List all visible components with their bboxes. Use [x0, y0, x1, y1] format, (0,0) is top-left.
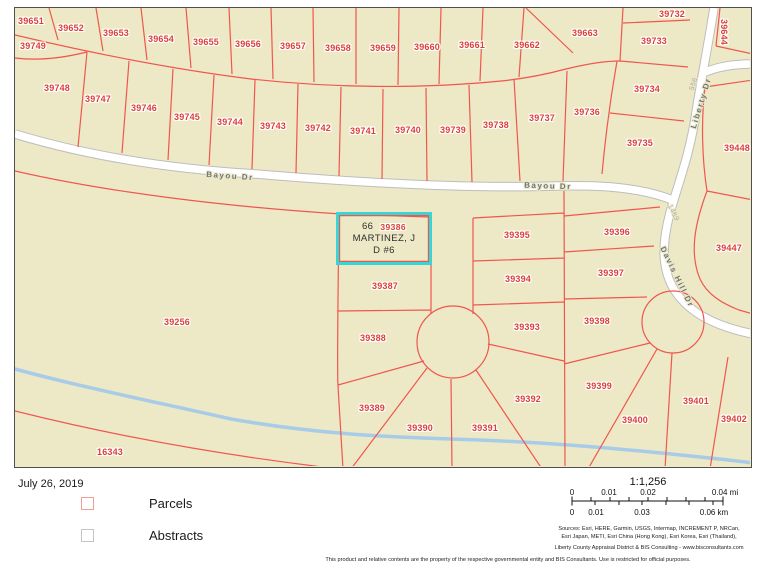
scale-tick-label: 0.01 — [601, 488, 617, 497]
abstracts-swatch-icon — [81, 529, 94, 542]
sources-line1: Sources: Esri, HERE, Garmin, USGS, Inter… — [558, 526, 739, 532]
scale-tick-label: 0.02 — [640, 488, 656, 497]
attribution: Liberty County Appraisal District & BIS … — [554, 545, 743, 551]
legend-label-parcels: Parcels — [149, 496, 192, 511]
map-date: July 26, 2019 — [18, 478, 83, 490]
map-export-page: 3965139652396533965439655396563965739658… — [0, 0, 776, 576]
scale-tick-label: 0.06 km — [700, 508, 728, 517]
scale-tick-label: 0.04 mi — [712, 488, 738, 497]
cul-de-sac-east — [642, 291, 704, 353]
selected-parcel-owner: MARTINEZ, J — [353, 233, 416, 245]
sources-line2: Esri Japan, METI, Esri China (Hong Kong)… — [561, 534, 736, 540]
parcels-swatch-icon — [81, 497, 94, 510]
selected-parcel-account: 39386 — [380, 221, 406, 233]
legend-item-parcels: Parcels — [81, 496, 192, 511]
cul-de-sac-west — [417, 306, 489, 378]
stream — [15, 369, 750, 463]
parcel-boundaries-north-curves — [15, 35, 621, 86]
scale-tick-label: 0.03 — [634, 508, 650, 517]
disclaimer: This product and relative contents are t… — [325, 557, 690, 563]
selected-parcel[interactable]: 66 39386 MARTINEZ, J D #6 — [336, 212, 432, 265]
selected-parcel-desc: D #6 — [373, 245, 395, 257]
scale-tick-label: 0 — [570, 508, 574, 517]
selected-parcel-lot: 66 — [362, 221, 373, 233]
legend-item-abstracts: Abstracts — [81, 528, 203, 543]
legend-label-abstracts: Abstracts — [149, 528, 203, 543]
scale-tick-label: 0 — [570, 488, 574, 497]
scale-tick-label: 0.01 — [588, 508, 604, 517]
scale-ratio: 1:1,256 — [568, 476, 728, 488]
parcel-boundaries-northeast — [602, 8, 750, 314]
